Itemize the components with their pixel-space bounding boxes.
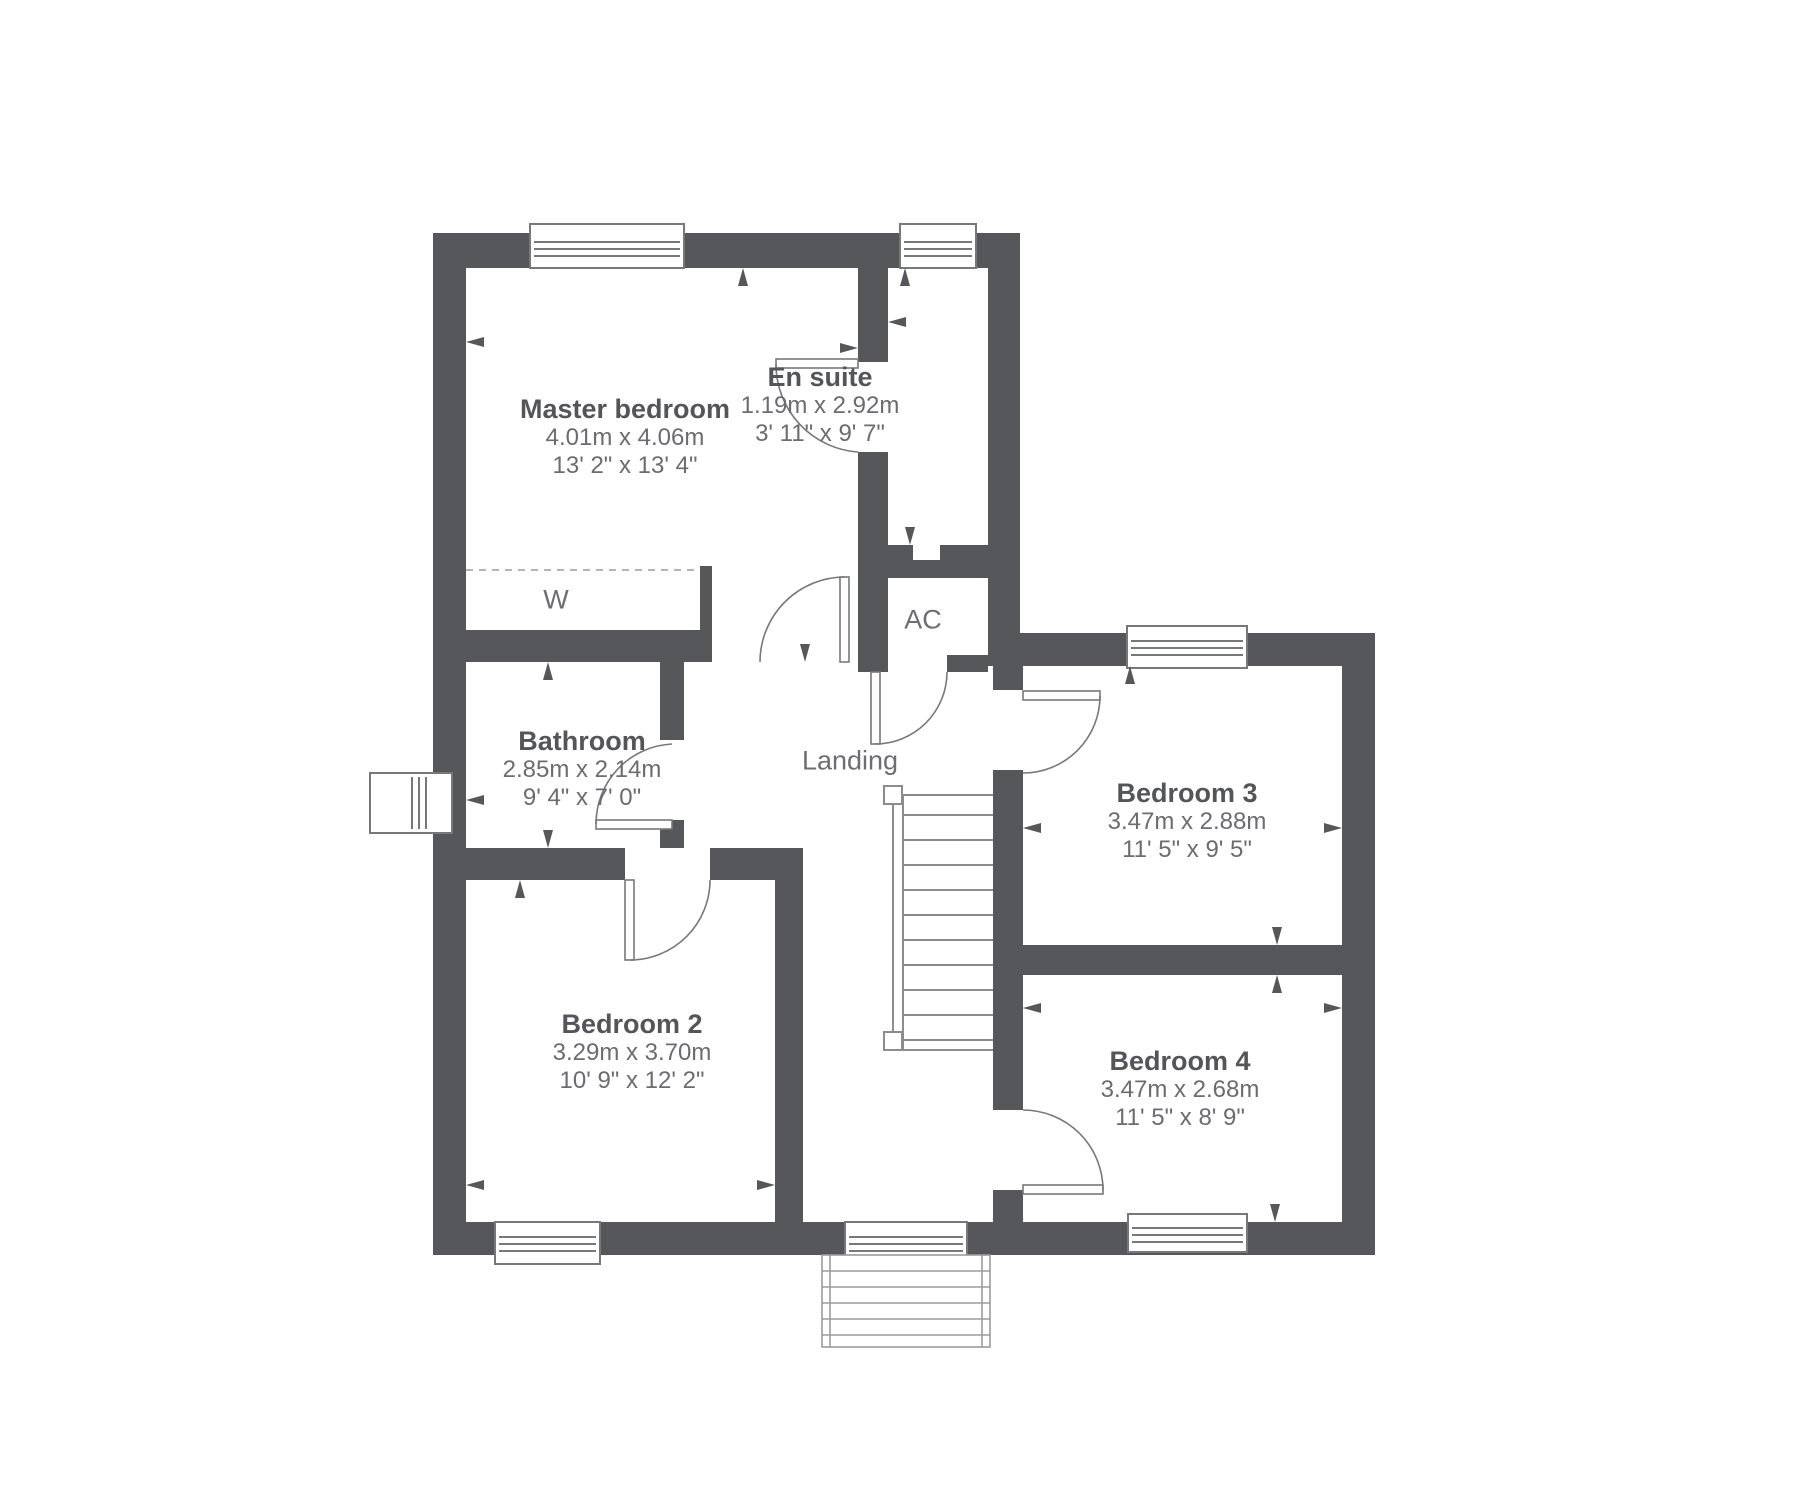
window-master-top bbox=[530, 224, 684, 268]
stair-newel-post-bottom bbox=[884, 1032, 902, 1050]
room-label-ensuite: En suite 1.19m x 2.92m 3' 11" x 9' 7" bbox=[741, 362, 900, 448]
window-bedroom3-top bbox=[1127, 626, 1247, 668]
area-label-airing-cupboard: AC bbox=[904, 605, 942, 636]
area-label-wardrobe: W bbox=[543, 585, 568, 616]
wall-bedroom2-landing bbox=[775, 880, 803, 1222]
room-name-bedroom3: Bedroom 3 bbox=[1108, 778, 1267, 808]
wall-right bbox=[1342, 633, 1375, 1255]
room-imperial-ensuite: 3' 11" x 9' 7" bbox=[741, 420, 900, 448]
wall-bedroom2-top-left bbox=[433, 848, 625, 880]
room-label-bathroom: Bathroom 2.85m x 2.14m 9' 4" x 7' 0" bbox=[503, 726, 662, 812]
floor-plan-drawing bbox=[0, 0, 1800, 1500]
wall-notch-ensuite bbox=[913, 545, 940, 560]
room-metric-bedroom3: 3.47m x 2.88m bbox=[1108, 808, 1267, 836]
room-label-bedroom2: Bedroom 2 3.29m x 3.70m 10' 9" x 12' 2" bbox=[553, 1009, 712, 1095]
wall-master-ensuite-lower bbox=[858, 452, 888, 545]
wall-bathroom-right-upper bbox=[660, 662, 684, 740]
room-name-ensuite: En suite bbox=[741, 362, 900, 392]
wall-bathroom-top bbox=[433, 630, 712, 662]
door-bedroom3 bbox=[1023, 691, 1100, 773]
room-label-master-bedroom: Master bedroom 4.01m x 4.06m 13' 2" x 13… bbox=[520, 394, 730, 480]
window-bedroom2-bottom bbox=[495, 1222, 600, 1264]
wall-left bbox=[433, 233, 466, 1255]
wall-ac-bottom-right bbox=[947, 655, 988, 672]
stair-newel-post-top bbox=[884, 786, 902, 804]
room-imperial-bathroom: 9' 4" x 7' 0" bbox=[503, 784, 662, 812]
wall-bedroom2-top-right bbox=[710, 848, 803, 880]
window-ensuite-top bbox=[900, 224, 976, 268]
room-metric-bathroom: 2.85m x 2.14m bbox=[503, 756, 662, 784]
room-metric-master: 4.01m x 4.06m bbox=[520, 424, 730, 452]
room-name-bedroom4: Bedroom 4 bbox=[1101, 1046, 1260, 1076]
window-bedroom4-bottom bbox=[1128, 1214, 1247, 1252]
room-name-bathroom: Bathroom bbox=[503, 726, 662, 756]
wall-bedroom34-left bbox=[993, 770, 1023, 1110]
wall-bedroom3-left-upper bbox=[993, 666, 1023, 690]
room-metric-bedroom2: 3.29m x 3.70m bbox=[553, 1039, 712, 1067]
room-name-master: Master bedroom bbox=[520, 394, 730, 424]
exterior-steps bbox=[822, 1255, 990, 1347]
room-imperial-bedroom3: 11' 5" x 9' 5" bbox=[1108, 836, 1267, 864]
wall-master-ensuite-upper bbox=[858, 268, 888, 362]
staircase bbox=[884, 786, 993, 1050]
area-label-landing: Landing bbox=[802, 746, 898, 777]
window-bathroom-left bbox=[370, 773, 452, 833]
door-bedroom2 bbox=[625, 880, 710, 960]
room-metric-bedroom4: 3.47m x 2.68m bbox=[1101, 1076, 1260, 1104]
wall-bedroom4-left-lower bbox=[993, 1190, 1023, 1222]
wall-ac-bottom-left bbox=[858, 655, 875, 672]
floor-plan-page: Master bedroom 4.01m x 4.06m 13' 2" x 13… bbox=[0, 0, 1800, 1500]
door-bedroom4 bbox=[1023, 1110, 1103, 1194]
room-label-bedroom3: Bedroom 3 3.47m x 2.88m 11' 5" x 9' 5" bbox=[1108, 778, 1267, 864]
door-ac-cupboard bbox=[871, 672, 947, 744]
room-metric-ensuite: 1.19m x 2.92m bbox=[741, 392, 900, 420]
wall-wardrobe-stub bbox=[700, 566, 712, 630]
room-imperial-bedroom4: 11' 5" x 8' 9" bbox=[1101, 1104, 1260, 1132]
room-imperial-bedroom2: 10' 9" x 12' 2" bbox=[553, 1067, 712, 1095]
room-imperial-master: 13' 2" x 13' 4" bbox=[520, 452, 730, 480]
room-name-bedroom2: Bedroom 2 bbox=[553, 1009, 712, 1039]
wall-bedroom3-bedroom4 bbox=[993, 945, 1342, 975]
wall-ensuite-right bbox=[988, 233, 1020, 666]
room-label-bedroom4: Bedroom 4 3.47m x 2.68m 11' 5" x 8' 9" bbox=[1101, 1046, 1260, 1132]
